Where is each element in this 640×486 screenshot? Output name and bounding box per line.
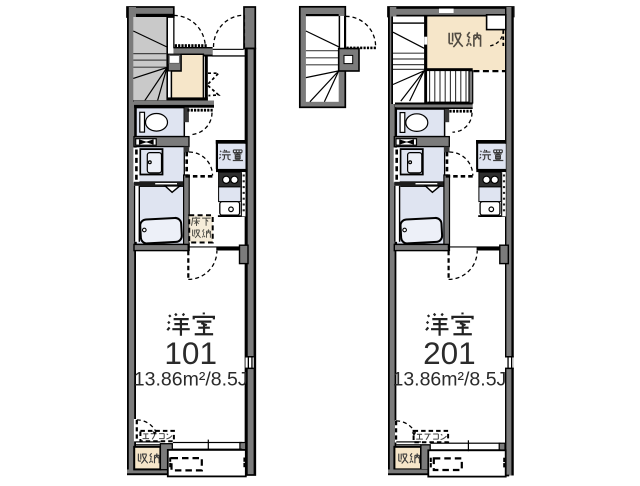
- svg-text:13.86m²/8.5J: 13.86m²/8.5J: [392, 369, 506, 391]
- svg-text:201: 201: [423, 335, 476, 371]
- svg-text:101: 101: [164, 335, 217, 371]
- svg-text:13.86m²/8.5J: 13.86m²/8.5J: [134, 369, 248, 391]
